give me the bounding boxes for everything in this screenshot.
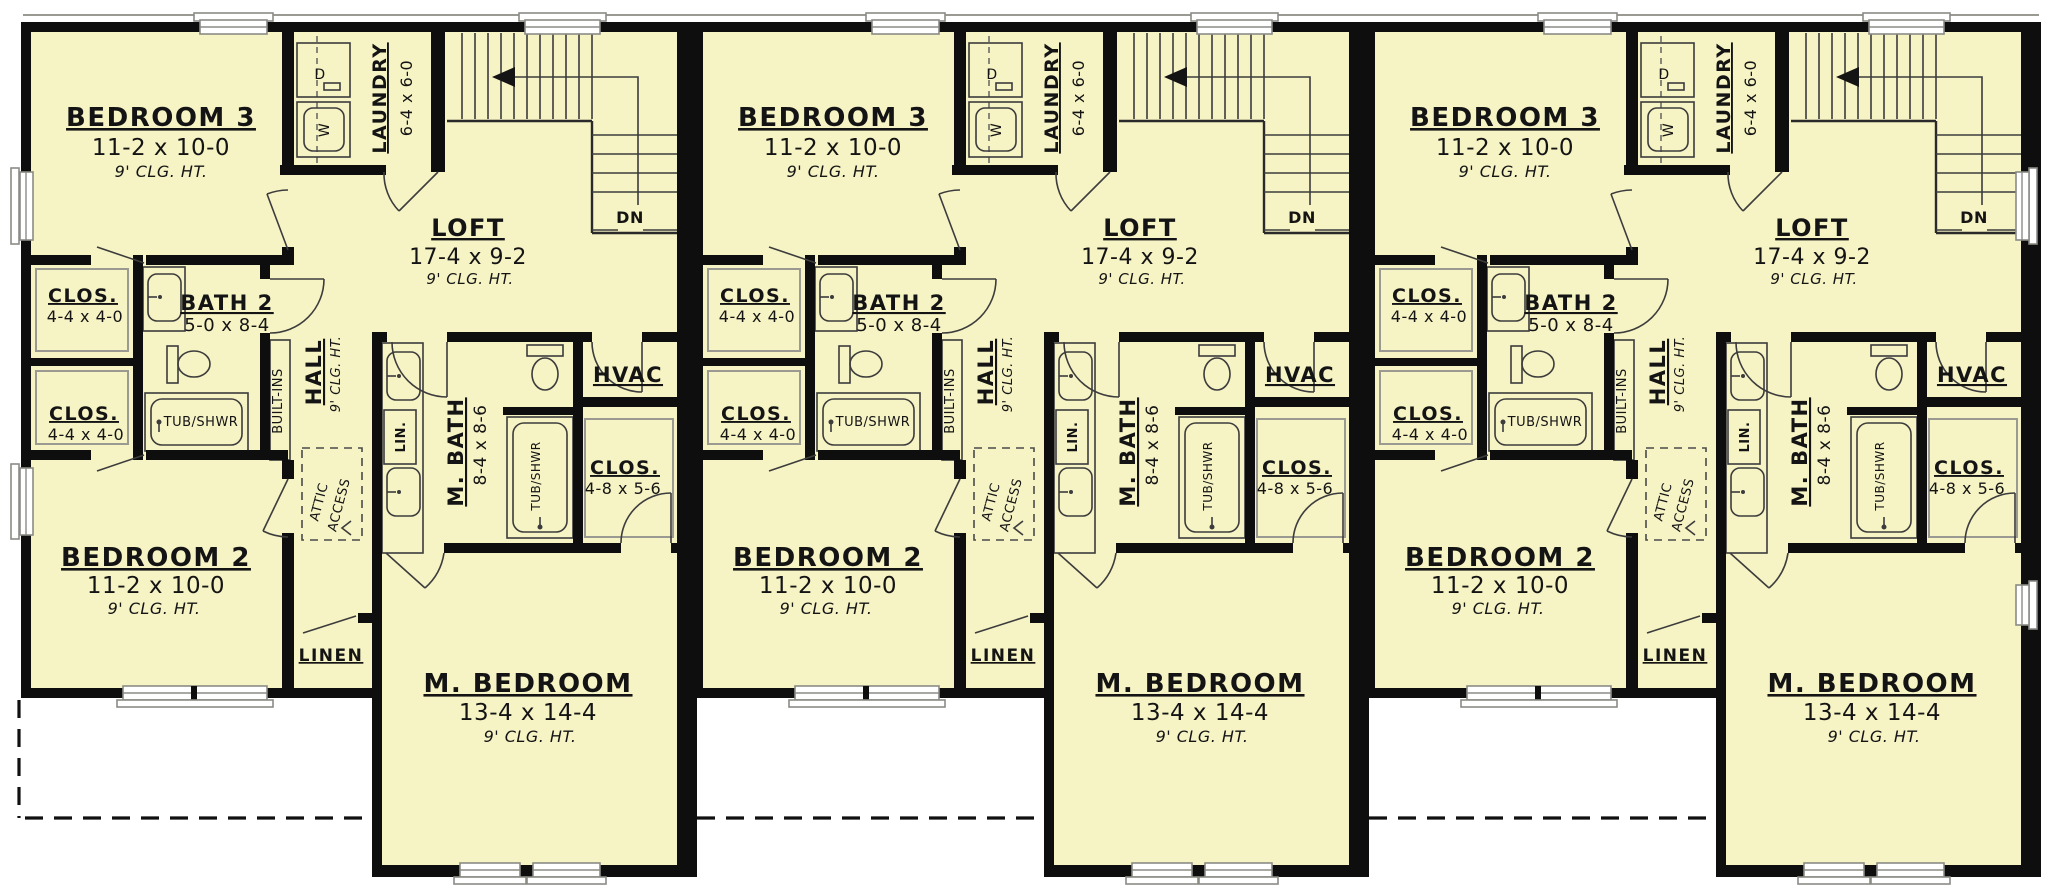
- unit-3: [1365, 13, 2041, 884]
- unit-2: [693, 13, 1369, 884]
- unit-1: [21, 13, 697, 884]
- floor-plan: DN D W: [0, 0, 2048, 891]
- floorplan-canvas: DN D W: [0, 0, 2048, 891]
